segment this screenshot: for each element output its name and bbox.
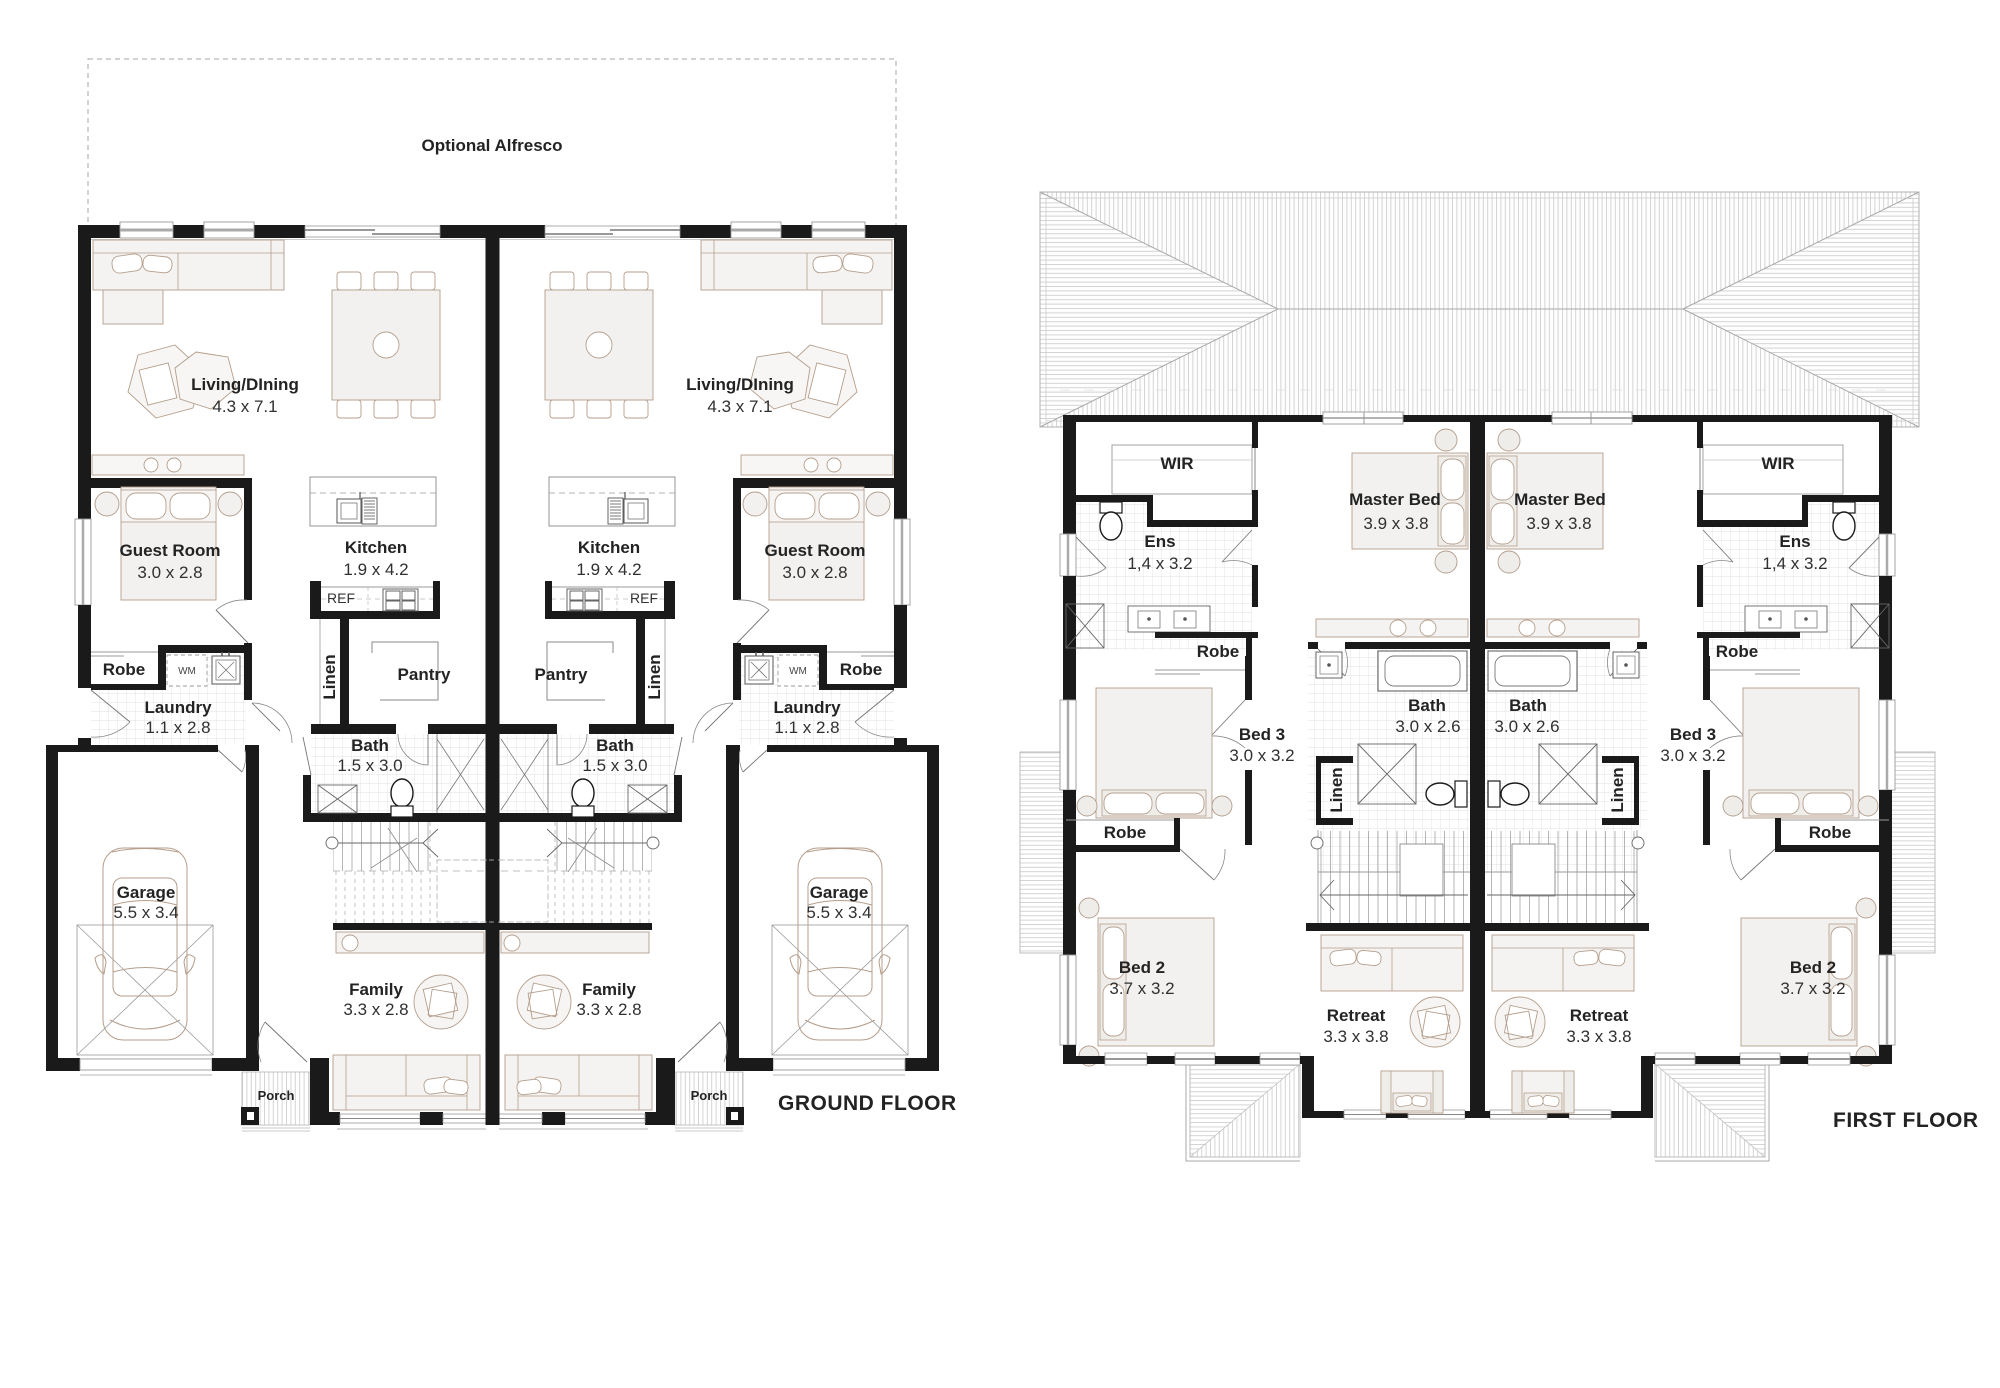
svg-text:3.3 x 3.8: 3.3 x 3.8 [1323,1027,1388,1046]
svg-text:Bath: Bath [351,736,389,755]
svg-text:Robe: Robe [1716,642,1759,661]
svg-text:Living/DIning: Living/DIning [686,375,794,394]
svg-text:Retreat: Retreat [1327,1006,1386,1025]
svg-text:Bath: Bath [1408,696,1446,715]
svg-text:Bed 2: Bed 2 [1119,958,1165,977]
svg-text:GROUND FLOOR: GROUND FLOOR [778,1092,957,1115]
svg-text:WIR: WIR [1160,454,1193,473]
svg-text:Robe: Robe [1104,823,1147,842]
svg-text:3.0 x 2.6: 3.0 x 2.6 [1395,717,1460,736]
svg-text:3.7 x 3.2: 3.7 x 3.2 [1780,979,1845,998]
svg-text:Optional Alfresco: Optional Alfresco [421,136,562,155]
svg-text:Bed 2: Bed 2 [1790,958,1836,977]
svg-text:Pantry: Pantry [535,665,588,684]
svg-text:3.0 x 2.8: 3.0 x 2.8 [137,563,202,582]
svg-text:3.3 x 2.8: 3.3 x 2.8 [343,1000,408,1019]
svg-text:Living/DIning: Living/DIning [191,375,299,394]
svg-text:Laundry: Laundry [144,698,212,717]
svg-text:Porch: Porch [691,1088,728,1103]
svg-text:5.5 x 3.4: 5.5 x 3.4 [806,903,871,922]
svg-text:3.0 x 2.8: 3.0 x 2.8 [782,563,847,582]
svg-text:Bed 3: Bed 3 [1239,725,1285,744]
svg-text:1.1 x 2.8: 1.1 x 2.8 [145,718,210,737]
svg-text:1.9 x 4.2: 1.9 x 4.2 [576,560,641,579]
svg-text:Bed 3: Bed 3 [1670,725,1716,744]
svg-text:3.9 x 3.8: 3.9 x 3.8 [1363,514,1428,533]
svg-text:Ens: Ens [1144,532,1175,551]
svg-text:3.0 x 3.2: 3.0 x 3.2 [1229,746,1294,765]
svg-text:WM: WM [178,666,196,677]
svg-text:3.0 x 3.2: 3.0 x 3.2 [1660,746,1725,765]
svg-text:3.3 x 3.8: 3.3 x 3.8 [1566,1027,1631,1046]
svg-text:Family: Family [349,980,403,999]
svg-text:Linen: Linen [645,654,664,699]
svg-text:1.5 x 3.0: 1.5 x 3.0 [337,756,402,775]
svg-text:Kitchen: Kitchen [345,538,407,557]
svg-text:4.3 x 7.1: 4.3 x 7.1 [212,397,277,416]
svg-text:FIRST FLOOR: FIRST FLOOR [1833,1109,1979,1132]
svg-text:1.5 x 3.0: 1.5 x 3.0 [582,756,647,775]
svg-text:Bath: Bath [596,736,634,755]
svg-text:Robe: Robe [103,660,146,679]
svg-text:Garage: Garage [117,883,176,902]
svg-text:Robe: Robe [1197,642,1240,661]
svg-text:1,4 x 3.2: 1,4 x 3.2 [1127,554,1192,573]
svg-text:Guest Room: Guest Room [764,541,865,560]
svg-text:Linen: Linen [1608,767,1627,812]
svg-text:3.9 x 3.8: 3.9 x 3.8 [1526,514,1591,533]
svg-text:REF: REF [630,590,658,606]
svg-text:Robe: Robe [840,660,883,679]
svg-text:Porch: Porch [258,1088,295,1103]
svg-text:1.1 x 2.8: 1.1 x 2.8 [774,718,839,737]
svg-text:Ens: Ens [1779,532,1810,551]
svg-text:3.7 x 3.2: 3.7 x 3.2 [1109,979,1174,998]
svg-text:REF: REF [327,590,355,606]
svg-text:Laundry: Laundry [773,698,841,717]
svg-text:WIR: WIR [1761,454,1794,473]
svg-text:4.3 x 7.1: 4.3 x 7.1 [707,397,772,416]
svg-text:Kitchen: Kitchen [578,538,640,557]
svg-text:Linen: Linen [1327,767,1346,812]
svg-text:Guest Room: Guest Room [119,541,220,560]
svg-text:5.5 x 3.4: 5.5 x 3.4 [113,903,178,922]
svg-text:Robe: Robe [1809,823,1852,842]
svg-text:3.3 x 2.8: 3.3 x 2.8 [576,1000,641,1019]
svg-text:Pantry: Pantry [398,665,451,684]
svg-text:Garage: Garage [810,883,869,902]
svg-text:Retreat: Retreat [1570,1006,1629,1025]
svg-text:Bath: Bath [1509,696,1547,715]
svg-text:Master Bed: Master Bed [1514,490,1606,509]
svg-text:Linen: Linen [320,654,339,699]
svg-text:3.0 x 2.6: 3.0 x 2.6 [1494,717,1559,736]
svg-text:1.9 x 4.2: 1.9 x 4.2 [343,560,408,579]
svg-text:Master Bed: Master Bed [1349,490,1441,509]
svg-text:1,4 x 3.2: 1,4 x 3.2 [1762,554,1827,573]
svg-text:Family: Family [582,980,636,999]
svg-text:WM: WM [789,666,807,677]
